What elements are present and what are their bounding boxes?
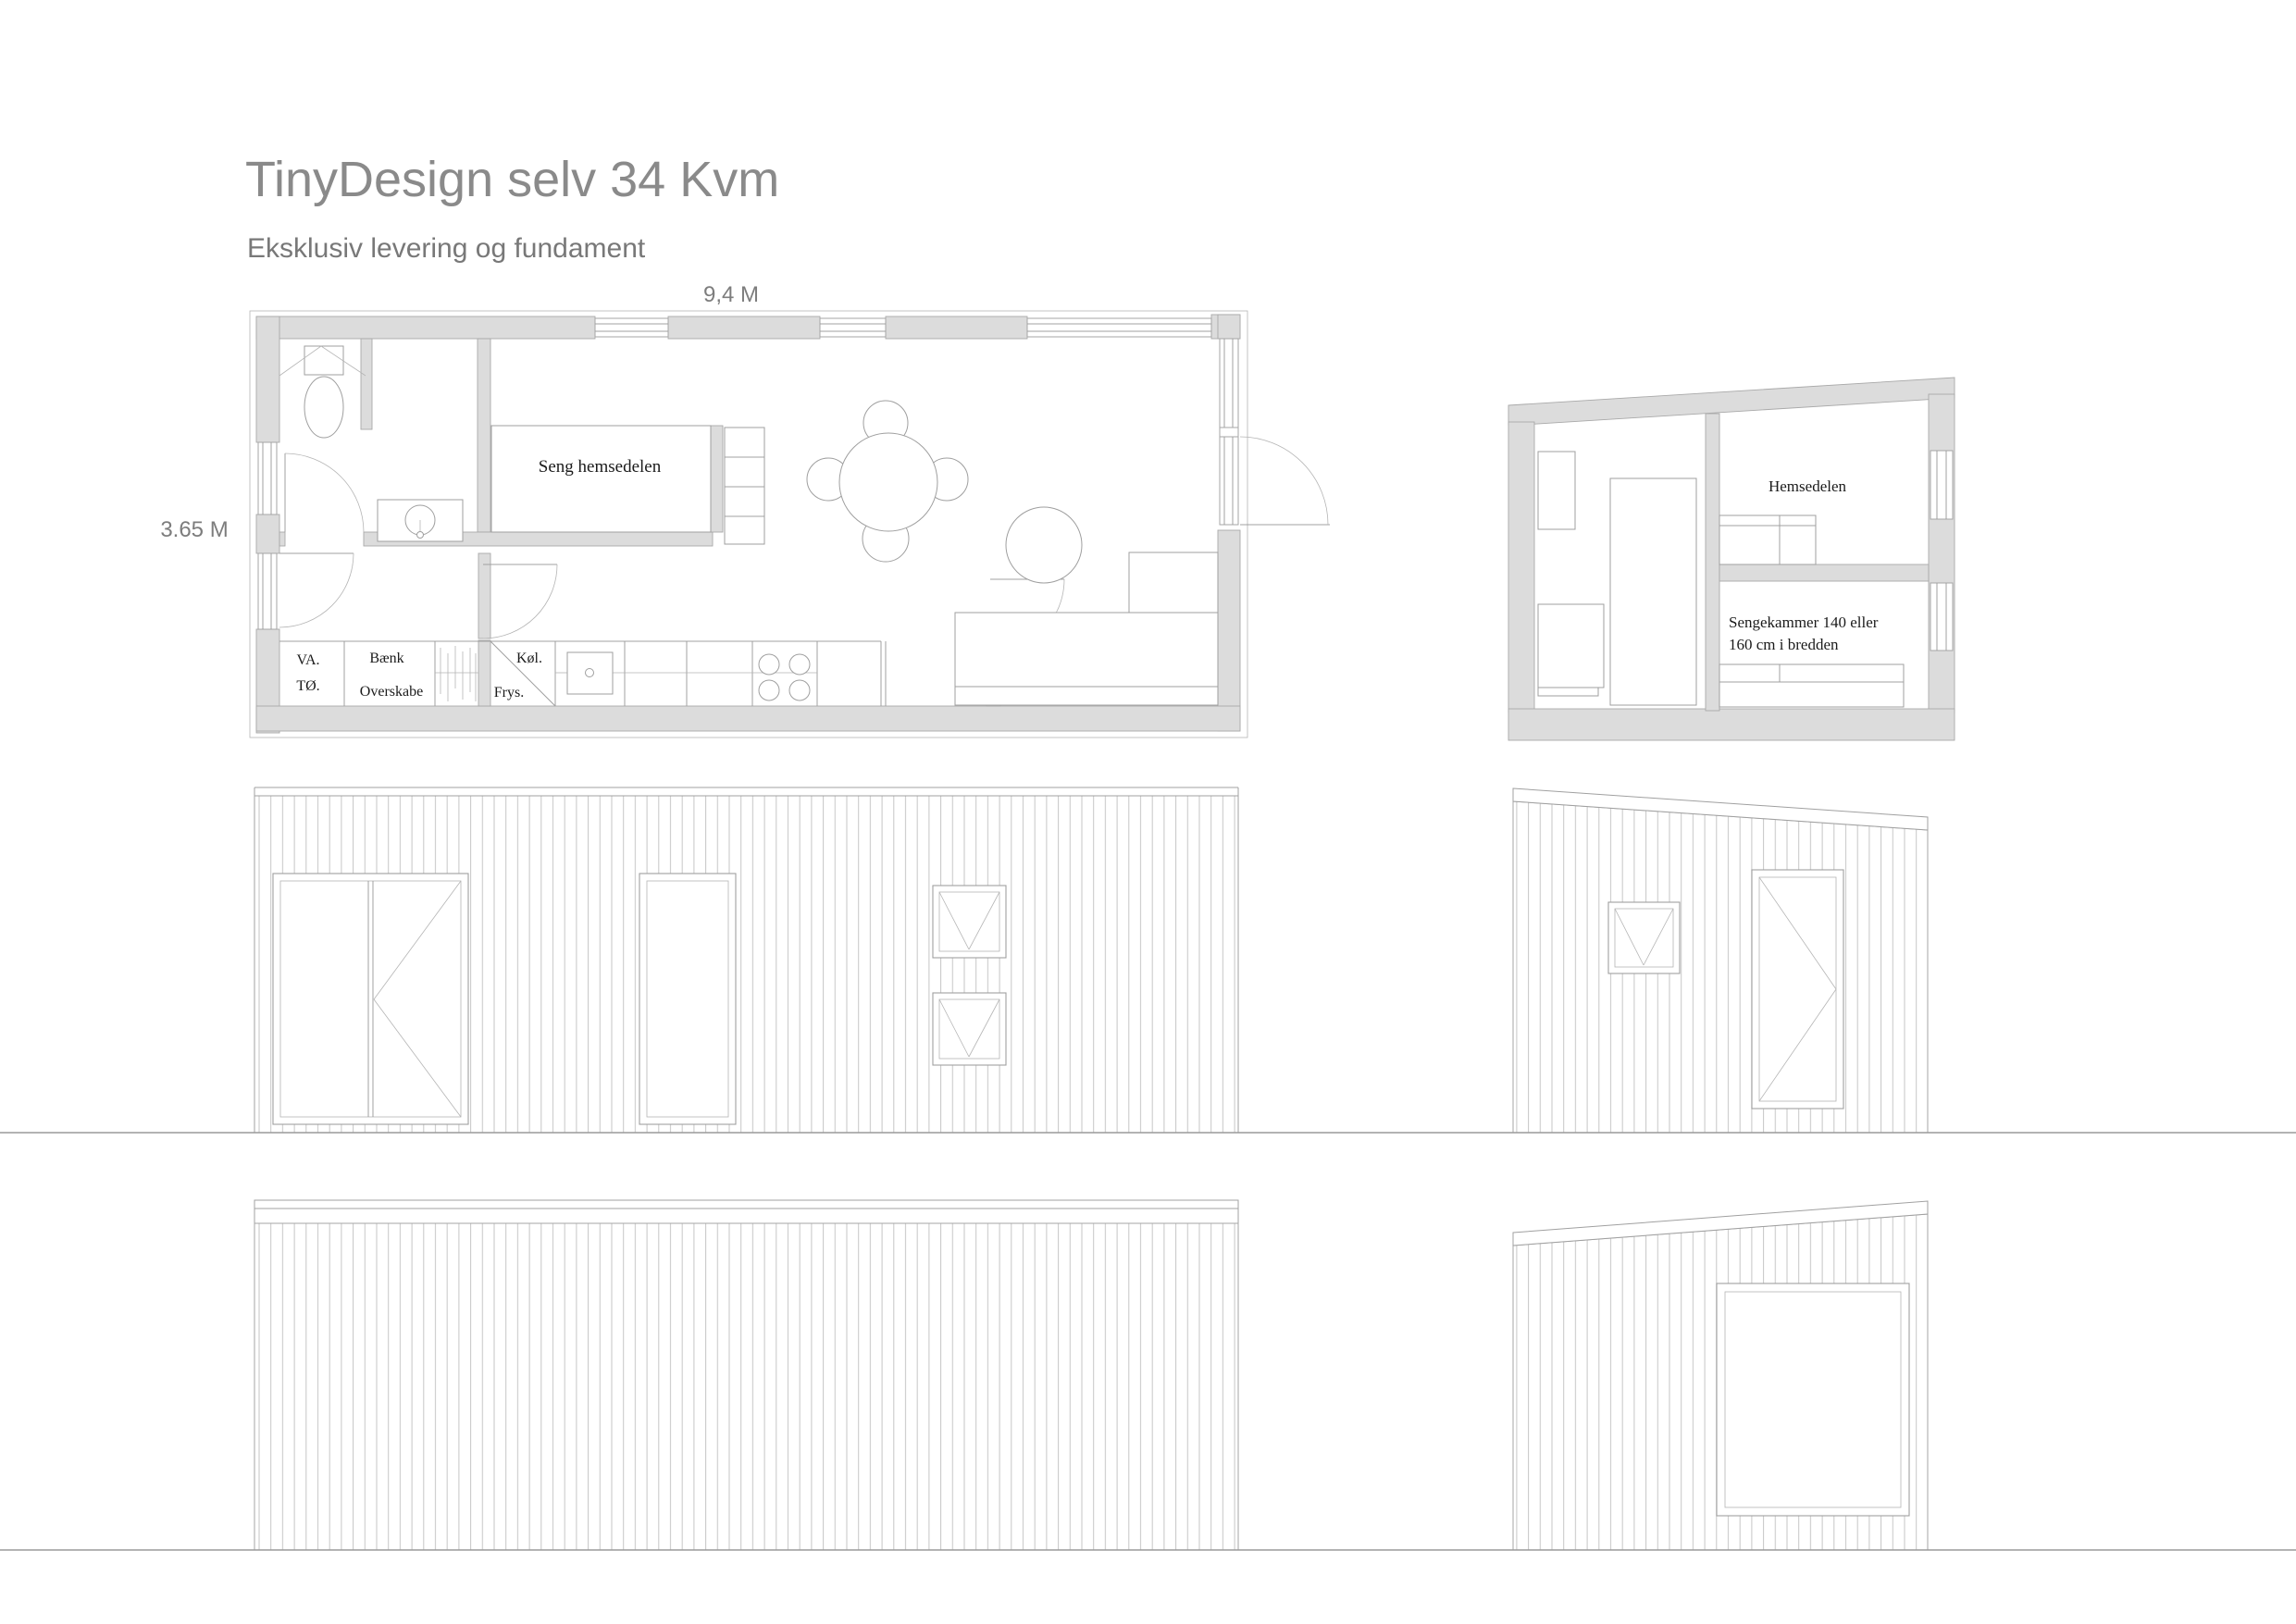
utility-label-line2: TØ. bbox=[296, 678, 319, 694]
utility-label-line1: VA. bbox=[296, 652, 319, 668]
kitchen-sink bbox=[567, 652, 613, 694]
dining-table bbox=[839, 433, 937, 531]
plan-window-top-3 bbox=[1027, 318, 1211, 337]
shower-partition bbox=[361, 339, 372, 429]
bed-chamber-label-line1: Sengekammer 140 eller bbox=[1729, 614, 1879, 631]
right-gable-elevation bbox=[1513, 788, 1928, 1133]
plan-window-top-2 bbox=[820, 318, 886, 337]
plan-window-left bbox=[258, 442, 277, 514]
section-roof bbox=[1508, 378, 1955, 426]
bed-label: Seng hemsedelen bbox=[539, 457, 662, 477]
cross-section: Hemsedelen Sengekammer 140 eller 160 cm … bbox=[1508, 378, 1955, 740]
loft-bed bbox=[491, 426, 711, 532]
elevation-square-window-2 bbox=[933, 993, 1006, 1065]
rear-elevation bbox=[254, 1200, 1238, 1550]
dining-set bbox=[807, 401, 968, 562]
bathroom-east-wall bbox=[478, 339, 490, 532]
bathroom-door bbox=[285, 453, 364, 532]
wardrobe bbox=[725, 428, 764, 544]
page-subtitle: Eksklusiv levering og fundament bbox=[247, 233, 646, 264]
section-door bbox=[1610, 478, 1696, 705]
dishwasher-hatch bbox=[441, 646, 476, 701]
elevation-tall-window bbox=[639, 874, 736, 1124]
gable-tall-door bbox=[1752, 870, 1843, 1109]
section-cabinet-lower bbox=[1538, 604, 1604, 688]
section-window-upper bbox=[1930, 451, 1953, 519]
toilet bbox=[304, 346, 343, 438]
section-right-wall bbox=[1929, 394, 1955, 713]
elevation-square-window-1 bbox=[933, 886, 1006, 958]
hall-to-kitchen-door bbox=[483, 564, 557, 638]
section-plinth bbox=[1538, 688, 1598, 696]
gable-large-window bbox=[1717, 1283, 1909, 1516]
stove bbox=[759, 654, 810, 700]
section-divider-wall bbox=[1706, 414, 1719, 711]
plan-entry-door bbox=[1220, 437, 1330, 525]
front-elevation bbox=[254, 787, 1238, 1133]
bed-side-wall bbox=[711, 426, 723, 532]
lounge-chair bbox=[1006, 507, 1082, 583]
width-dimension-label: 9,4 M bbox=[703, 282, 759, 307]
section-loft-bed bbox=[1719, 515, 1816, 564]
plan-door-left bbox=[258, 553, 354, 629]
section-bed bbox=[1719, 664, 1904, 707]
page-title: TinyDesign selv 34 Kvm bbox=[245, 152, 779, 207]
section-window-lower bbox=[1930, 583, 1953, 651]
floor-plan: Seng hemsedelen bbox=[250, 311, 1330, 738]
left-gable-elevation bbox=[1513, 1201, 1928, 1550]
overhead-cabinet-label: Overskabe bbox=[360, 684, 423, 700]
hall-wall-stub bbox=[478, 553, 490, 638]
plan-window-top-1 bbox=[595, 318, 668, 337]
section-cabinet-upper bbox=[1538, 452, 1575, 529]
bathroom-sink bbox=[378, 500, 463, 541]
bed-chamber-label-line2: 160 cm i bredden bbox=[1729, 636, 1839, 653]
depth-dimension-label: 3.65 M bbox=[160, 517, 228, 542]
freezer-label: Frys. bbox=[494, 685, 524, 700]
architectural-drawing-canvas: TinyDesign selv 34 Kvm Eksklusiv leverin… bbox=[0, 0, 2296, 1624]
drawing-sheet: TinyDesign selv 34 Kvm Eksklusiv leverin… bbox=[0, 0, 2296, 1624]
bench-label: Bænk bbox=[369, 651, 403, 666]
fridge-label: Køl. bbox=[516, 651, 542, 666]
elevation-double-door bbox=[273, 874, 468, 1124]
section-floor bbox=[1508, 709, 1955, 740]
section-left-wall bbox=[1508, 422, 1534, 713]
staircase bbox=[955, 552, 1218, 705]
loft-label: Hemsedelen bbox=[1769, 477, 1847, 495]
gable-square-window bbox=[1608, 902, 1680, 973]
plan-window-right bbox=[1220, 339, 1238, 437]
section-loft-floor bbox=[1719, 564, 1929, 581]
